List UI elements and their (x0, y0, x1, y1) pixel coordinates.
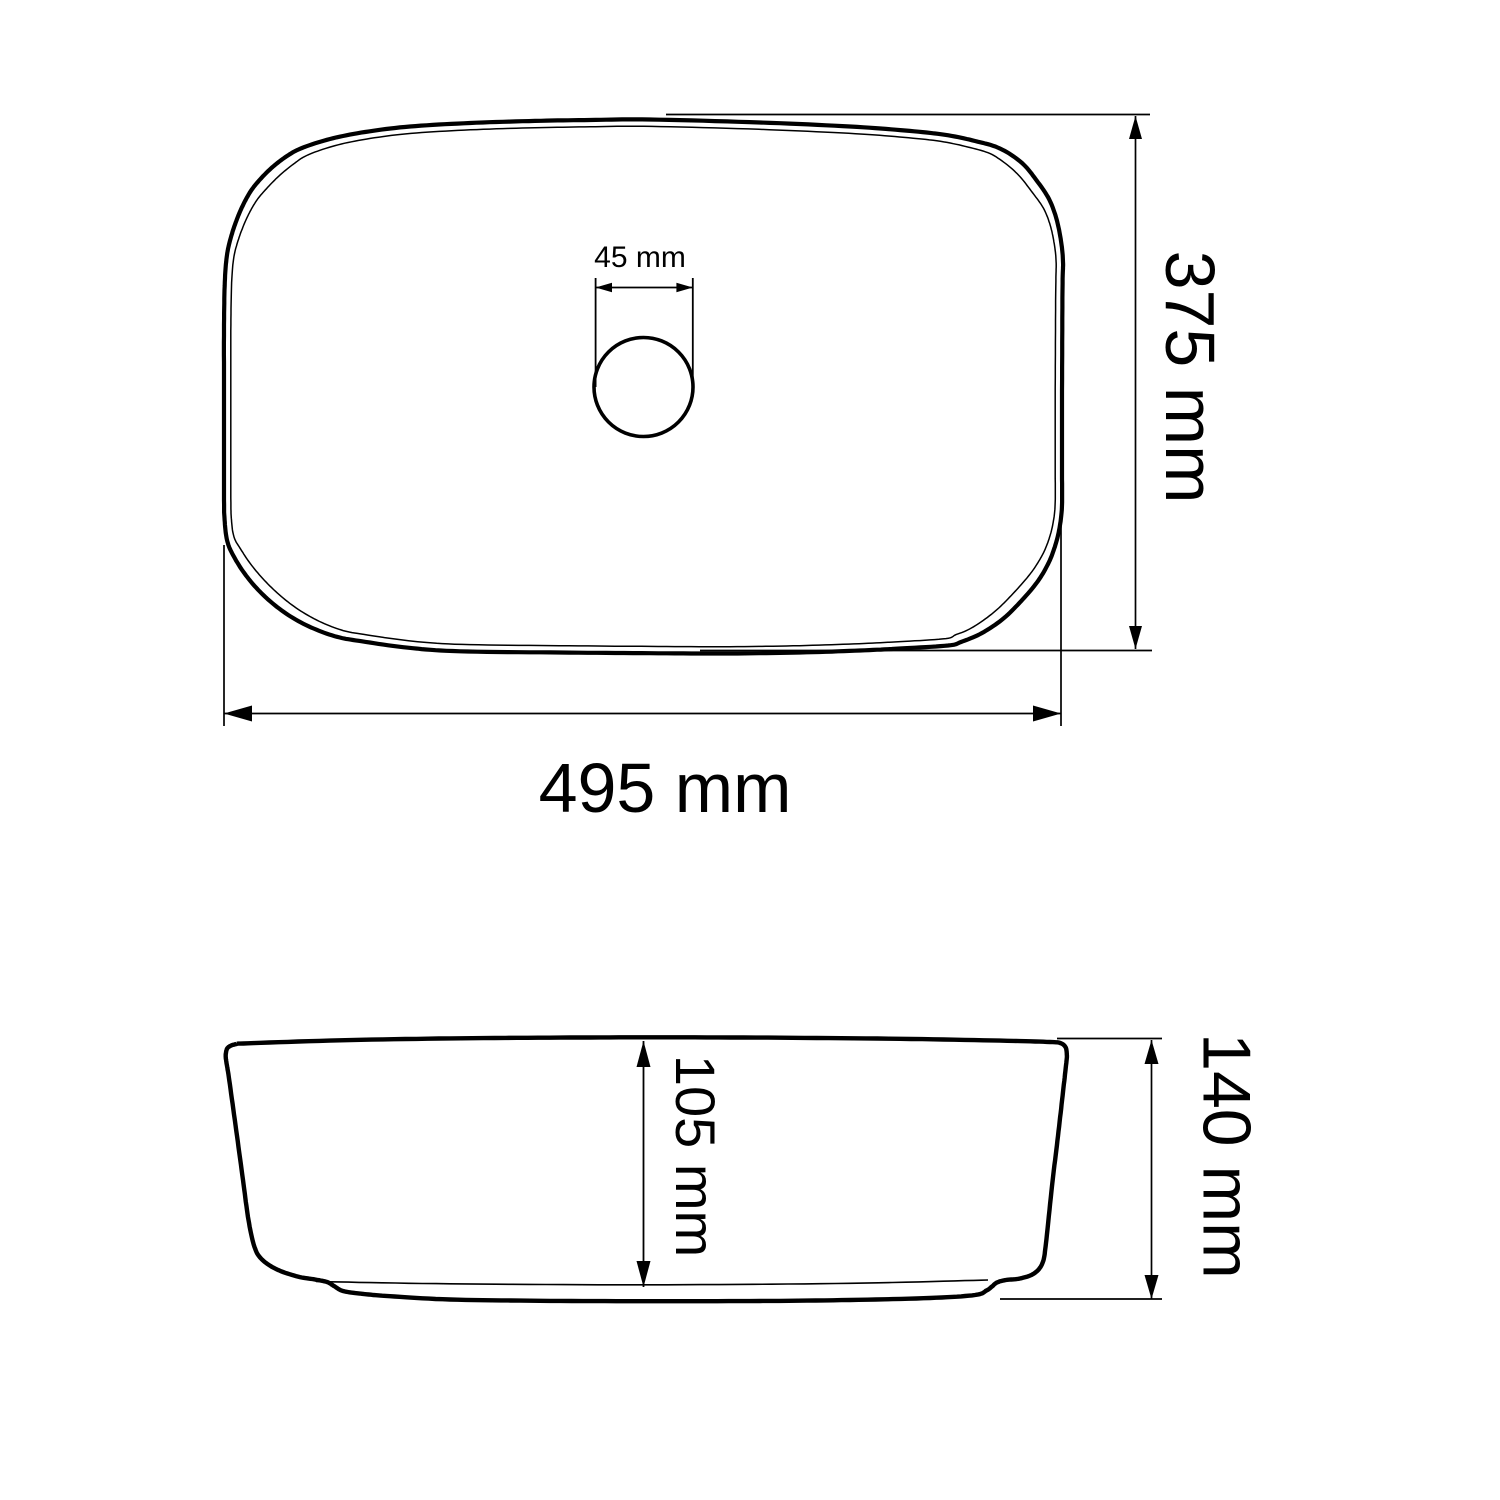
svg-text:375 mm: 375 mm (1151, 251, 1229, 504)
svg-text:495 mm: 495 mm (539, 749, 792, 827)
svg-text:105 mm: 105 mm (664, 1055, 727, 1257)
svg-text:45 mm: 45 mm (594, 241, 686, 274)
svg-text:140 mm: 140 mm (1189, 1033, 1265, 1279)
